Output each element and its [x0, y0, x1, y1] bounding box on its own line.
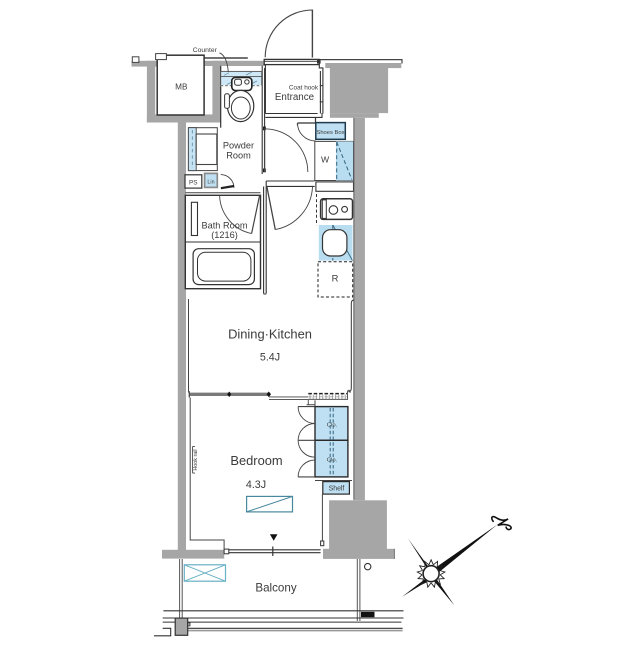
svg-text:PS: PS [189, 180, 198, 187]
svg-text:Entrance: Entrance [275, 92, 315, 103]
svg-text:R: R [332, 272, 339, 283]
svg-text:Coat hook: Coat hook [289, 85, 319, 92]
svg-text:5.4J: 5.4J [260, 352, 280, 364]
svg-text:Clo.: Clo. [327, 422, 338, 428]
svg-text:Balcony: Balcony [255, 582, 296, 595]
svg-text:4.3J: 4.3J [246, 479, 266, 491]
svg-text:Shelf: Shelf [329, 485, 345, 492]
svg-text:Bath Room: Bath Room [202, 220, 248, 230]
svg-text:Clo.: Clo. [327, 457, 338, 463]
svg-text:Dining·Kitchen: Dining·Kitchen [228, 327, 312, 342]
svg-text:Bedroom: Bedroom [230, 453, 282, 468]
svg-text:Counter: Counter [193, 47, 218, 54]
svg-text:(1216): (1216) [211, 230, 238, 240]
svg-text:Shoes Box: Shoes Box [316, 130, 344, 136]
svg-text:MB: MB [175, 82, 188, 91]
svg-text:W: W [321, 155, 330, 165]
svg-text:Room: Room [226, 151, 251, 161]
svg-text:Lin: Lin [207, 179, 214, 185]
svg-text:Powder: Powder [223, 141, 254, 151]
svg-text:Hook rail: Hook rail [193, 449, 199, 470]
